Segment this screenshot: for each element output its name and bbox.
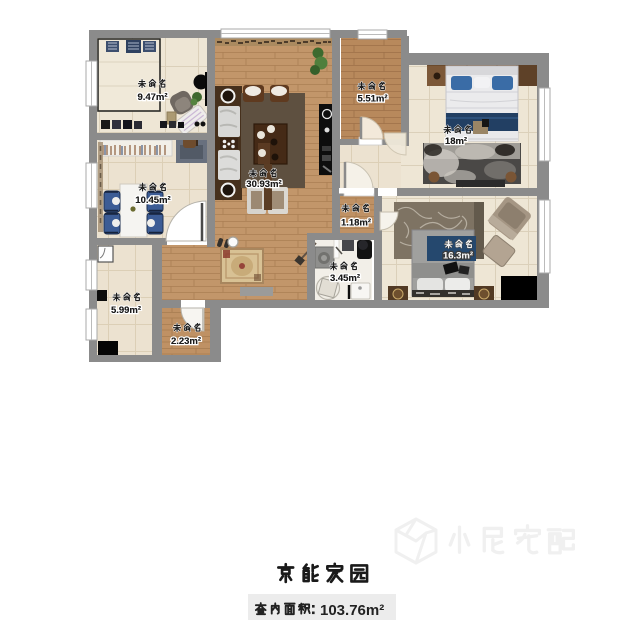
svg-text:18m²: 18m² xyxy=(445,136,467,147)
svg-text:10.45m²: 10.45m² xyxy=(135,195,170,206)
svg-text:3.45m²: 3.45m² xyxy=(330,273,360,284)
svg-text:16.3m²: 16.3m² xyxy=(443,251,473,262)
svg-text:5.99m²: 5.99m² xyxy=(111,305,141,316)
svg-text:5.51m²: 5.51m² xyxy=(357,94,387,105)
svg-text:2.23m²: 2.23m² xyxy=(171,336,201,347)
svg-text:30.93m²: 30.93m² xyxy=(246,179,281,190)
svg-text:9.47m²: 9.47m² xyxy=(137,92,167,103)
svg-text:1.18m²: 1.18m² xyxy=(341,218,371,229)
svg-text:103.76m²: 103.76m² xyxy=(320,602,384,619)
